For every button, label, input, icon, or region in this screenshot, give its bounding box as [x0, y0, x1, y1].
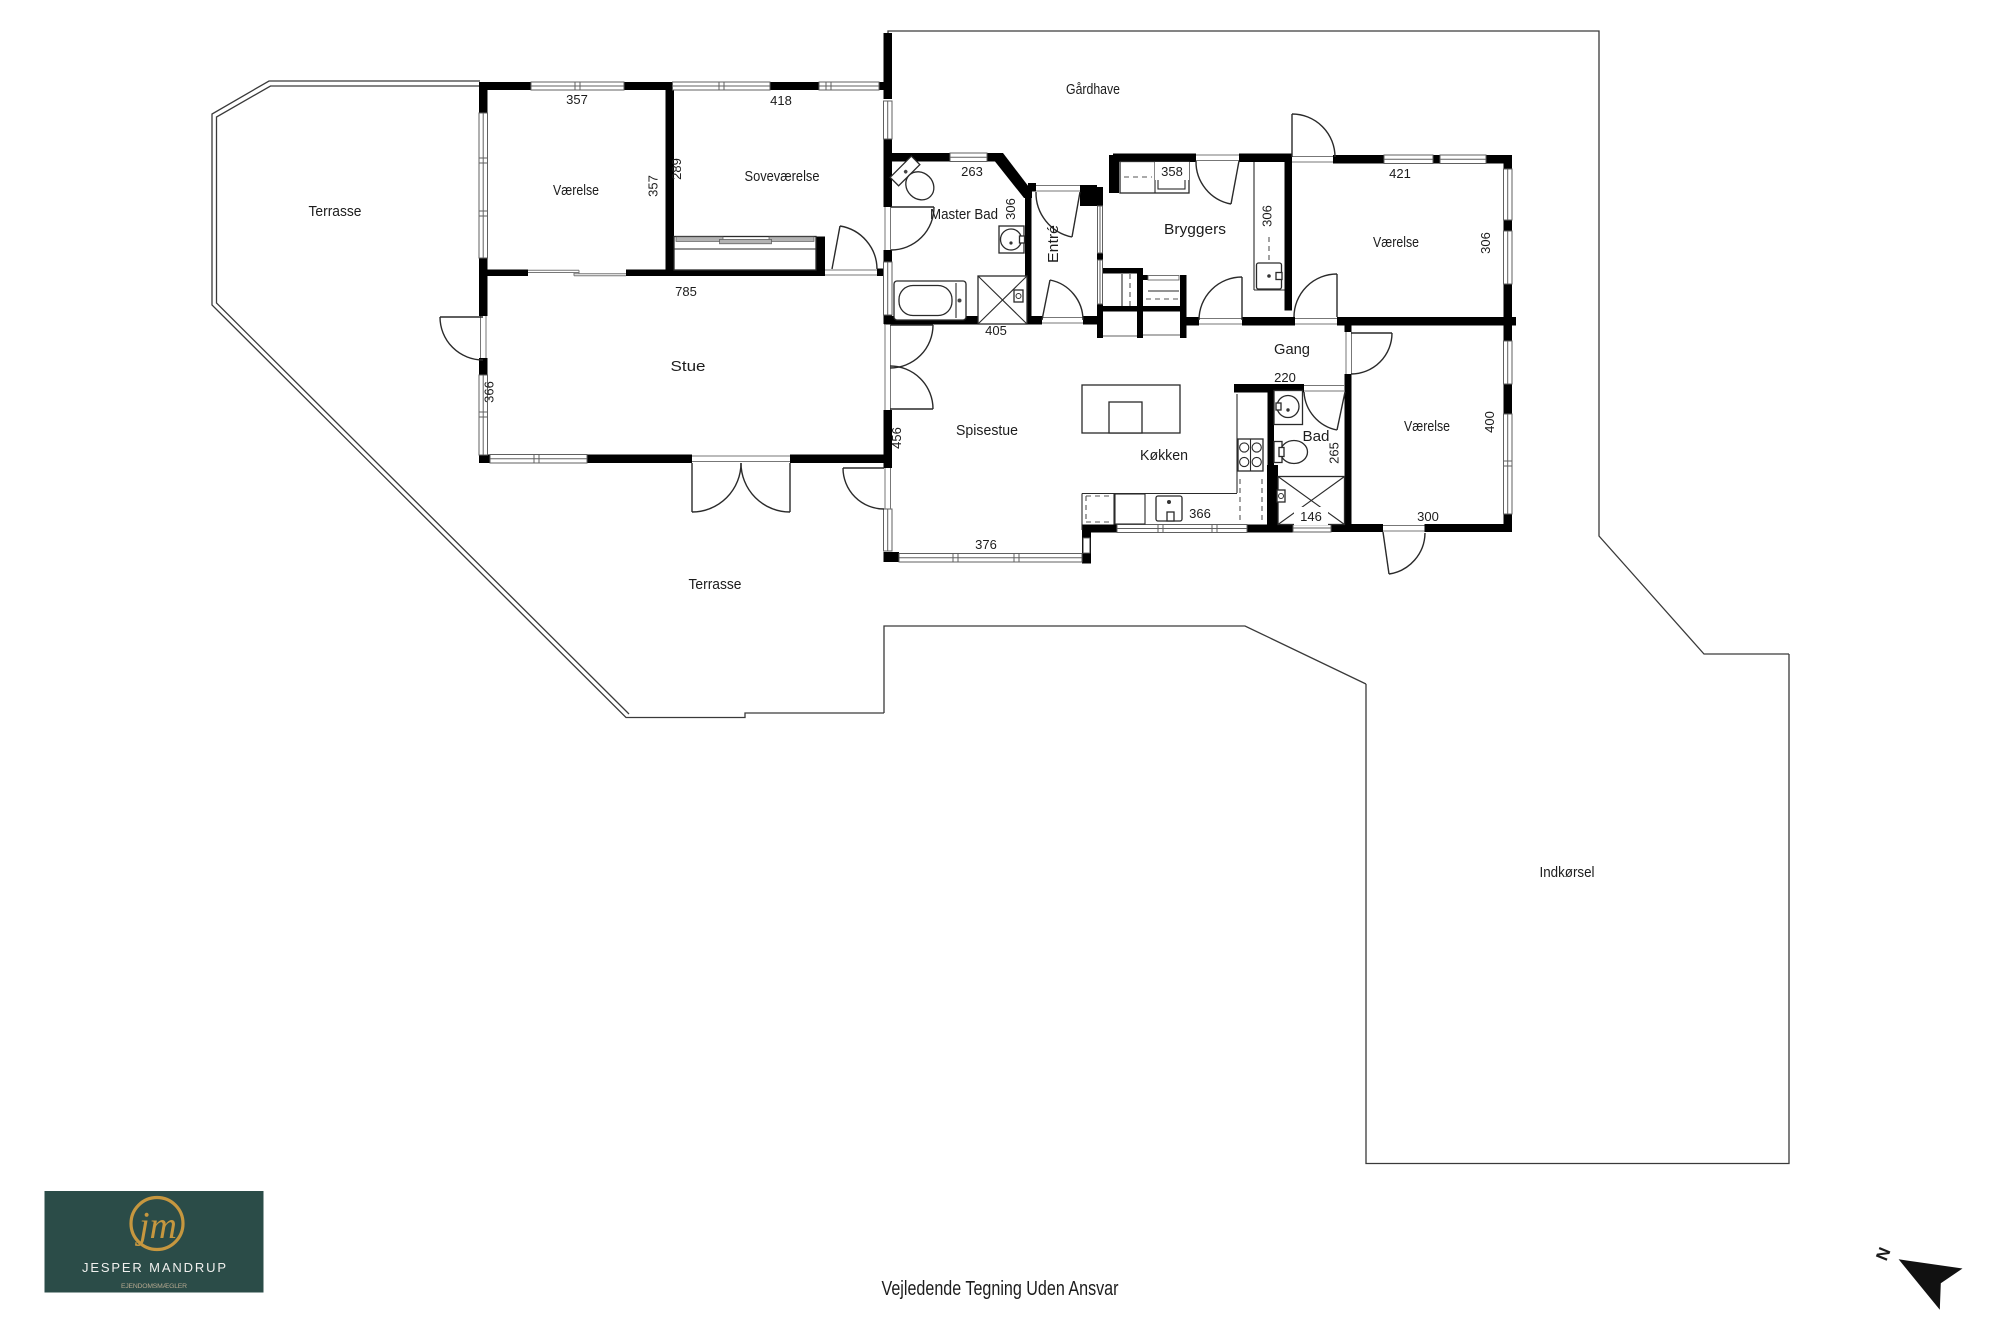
svg-text:Værelse: Værelse: [1404, 419, 1450, 435]
svg-text:Master Bad: Master Bad: [930, 207, 998, 223]
svg-text:358: 358: [1161, 164, 1183, 179]
svg-text:Gårdhave: Gårdhave: [1066, 82, 1120, 98]
svg-text:306: 306: [1478, 232, 1493, 254]
svg-text:421: 421: [1389, 166, 1411, 181]
svg-text:366: 366: [1189, 506, 1211, 521]
svg-text:Bryggers: Bryggers: [1164, 222, 1226, 238]
svg-text:Stue: Stue: [671, 359, 706, 375]
svg-text:357: 357: [646, 175, 661, 197]
svg-text:405: 405: [985, 323, 1007, 338]
svg-text:Indkørsel: Indkørsel: [1540, 865, 1595, 881]
svg-text:366: 366: [482, 381, 497, 403]
svg-text:Værelse: Værelse: [553, 183, 599, 199]
svg-text:785: 785: [675, 284, 697, 299]
svg-text:EJENDOMSMÆGLER: EJENDOMSMÆGLER: [121, 1283, 187, 1290]
svg-text:Terrasse: Terrasse: [309, 204, 362, 220]
svg-text:306: 306: [1003, 198, 1018, 220]
svg-text:376: 376: [975, 537, 997, 552]
svg-text:289: 289: [669, 158, 684, 180]
svg-text:220: 220: [1274, 370, 1296, 385]
svg-text:265: 265: [1327, 442, 1342, 464]
svg-text:Værelse: Værelse: [1373, 235, 1419, 251]
svg-text:Køkken: Køkken: [1140, 448, 1188, 464]
svg-text:146: 146: [1300, 509, 1322, 524]
svg-text:jm: jm: [134, 1205, 177, 1247]
svg-text:300: 300: [1417, 509, 1439, 524]
svg-text:Vejledende Tegning Uden Ansvar: Vejledende Tegning Uden Ansvar: [882, 1278, 1119, 1300]
svg-text:Terrasse: Terrasse: [689, 577, 742, 593]
svg-text:456: 456: [889, 427, 904, 449]
svg-text:Soveværelse: Soveværelse: [745, 169, 820, 185]
svg-text:Entré: Entré: [1046, 225, 1062, 263]
svg-text:306: 306: [1260, 205, 1275, 227]
svg-text:263: 263: [961, 164, 983, 179]
svg-text:418: 418: [770, 93, 792, 108]
svg-text:Bad: Bad: [1303, 429, 1330, 445]
svg-text:357: 357: [566, 92, 588, 107]
svg-text:Gang: Gang: [1274, 342, 1310, 358]
svg-text:Spisestue: Spisestue: [956, 423, 1018, 439]
svg-text:400: 400: [1482, 411, 1497, 433]
